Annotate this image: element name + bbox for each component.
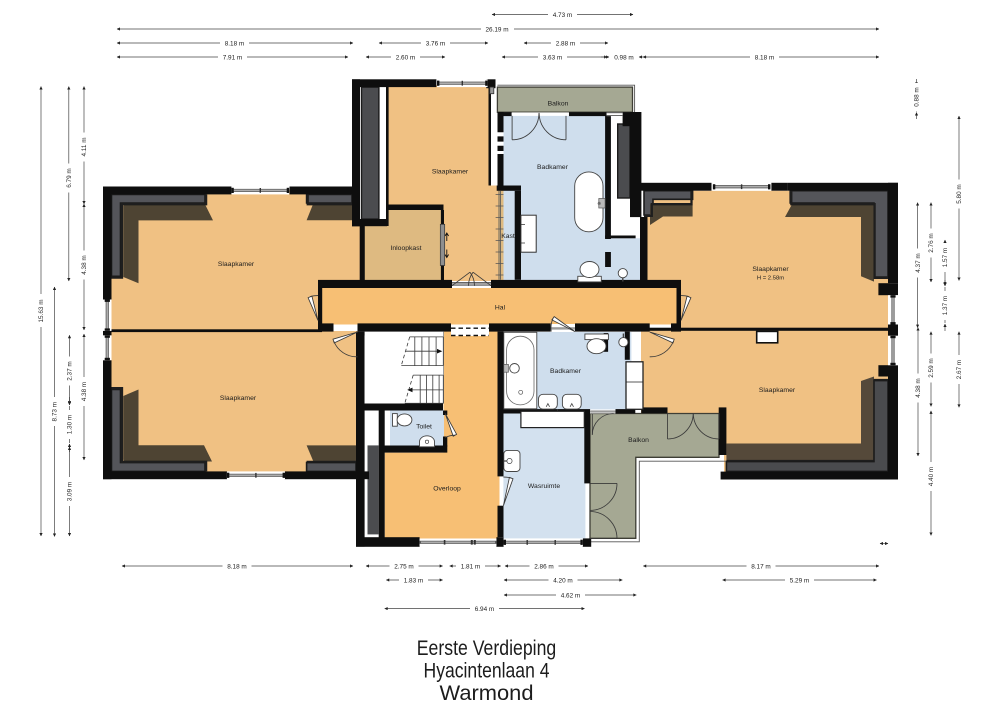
svg-text:7.91 m: 7.91 m — [223, 54, 243, 61]
svg-text:5.80 m: 5.80 m — [956, 184, 963, 204]
svg-text:Balkon: Balkon — [628, 437, 649, 444]
svg-text:8.73 m: 8.73 m — [52, 402, 59, 422]
svg-text:4.38 m: 4.38 m — [81, 382, 88, 402]
svg-text:Balkon: Balkon — [548, 100, 569, 107]
svg-text:Hyacintenlaan 4: Hyacintenlaan 4 — [424, 660, 550, 683]
svg-text:4.73 m: 4.73 m — [553, 12, 573, 19]
svg-text:6.94 m: 6.94 m — [475, 606, 495, 613]
svg-text:4.20 m: 4.20 m — [553, 577, 573, 584]
svg-text:6.79 m: 6.79 m — [66, 168, 73, 188]
svg-text:8.18 m: 8.18 m — [755, 54, 775, 61]
svg-text:Badkamer: Badkamer — [550, 368, 582, 375]
svg-text:1.81 m: 1.81 m — [461, 563, 481, 570]
svg-text:2.67 m: 2.67 m — [956, 360, 963, 380]
svg-text:Slaapkamer: Slaapkamer — [218, 261, 255, 268]
svg-text:2.88 m: 2.88 m — [556, 40, 576, 47]
svg-text:1.37 m: 1.37 m — [942, 296, 949, 316]
svg-text:4.37 m: 4.37 m — [915, 253, 922, 273]
svg-text:4.38 m: 4.38 m — [81, 255, 88, 275]
svg-text:Slaapkamer: Slaapkamer — [220, 395, 257, 402]
svg-text:0.98 m: 0.98 m — [614, 54, 634, 61]
svg-text:Wasruimte: Wasruimte — [528, 483, 560, 490]
svg-text:1.30 m: 1.30 m — [67, 415, 74, 435]
svg-text:8.18 m: 8.18 m — [225, 40, 245, 47]
svg-text:2.76 m: 2.76 m — [928, 233, 935, 253]
svg-text:2.59 m: 2.59 m — [928, 358, 935, 378]
svg-text:8.18 m: 8.18 m — [227, 563, 247, 570]
svg-text:Badkamer: Badkamer — [537, 164, 569, 171]
svg-text:Kast: Kast — [501, 233, 515, 240]
svg-text:2.37 m: 2.37 m — [67, 361, 74, 381]
svg-text:0.88 m: 0.88 m — [914, 87, 921, 107]
svg-text:4.62 m: 4.62 m — [561, 592, 581, 599]
svg-text:Warmond: Warmond — [440, 682, 534, 705]
svg-text:Inloopkast: Inloopkast — [391, 245, 422, 252]
svg-text:3.09 m: 3.09 m — [67, 482, 74, 502]
svg-text:2.75 m: 2.75 m — [394, 563, 414, 570]
svg-text:26.19 m: 26.19 m — [485, 26, 508, 33]
svg-text:2.60 m: 2.60 m — [396, 54, 416, 61]
svg-text:2.86 m: 2.86 m — [534, 563, 554, 570]
svg-text:4.11 m: 4.11 m — [81, 137, 88, 156]
svg-text:8.17 m: 8.17 m — [751, 563, 771, 570]
svg-text:Overloop: Overloop — [433, 485, 461, 492]
svg-text:Slaapkamer: Slaapkamer — [759, 387, 796, 394]
svg-text:H = 2.58m: H = 2.58m — [757, 276, 784, 282]
svg-text:Slaapkamer: Slaapkamer — [752, 266, 789, 273]
svg-text:1.57 m: 1.57 m — [942, 248, 949, 268]
svg-text:Eerste Verdieping: Eerste Verdieping — [417, 637, 557, 660]
svg-text:3.76 m: 3.76 m — [426, 40, 446, 47]
svg-text:Toilet: Toilet — [416, 423, 432, 430]
svg-text:Hal: Hal — [495, 305, 506, 312]
svg-text:15.63 m: 15.63 m — [38, 299, 45, 322]
svg-text:4.38 m: 4.38 m — [915, 378, 922, 398]
svg-text:5.29 m: 5.29 m — [790, 577, 810, 584]
svg-text:4.40 m: 4.40 m — [928, 467, 935, 487]
svg-text:3.63 m: 3.63 m — [543, 54, 563, 61]
svg-text:1.83 m: 1.83 m — [404, 577, 424, 584]
svg-text:Slaapkamer: Slaapkamer — [432, 168, 469, 175]
